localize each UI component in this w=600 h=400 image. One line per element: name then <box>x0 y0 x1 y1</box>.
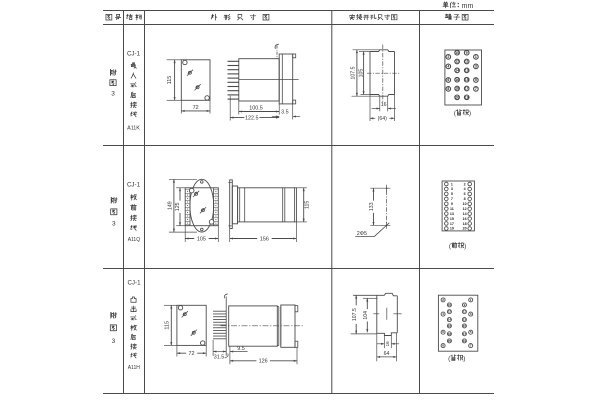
svg-text:18: 18 <box>448 332 452 336</box>
svg-text:100.5: 100.5 <box>249 106 263 112</box>
svg-text:20: 20 <box>455 96 459 100</box>
svg-text:15: 15 <box>463 324 467 328</box>
svg-text:5: 5 <box>451 192 453 196</box>
svg-text:107.5: 107.5 <box>350 66 356 79</box>
svg-text:10: 10 <box>448 303 452 307</box>
svg-text:16: 16 <box>463 217 467 221</box>
svg-text:CJ-1: CJ-1 <box>127 51 141 58</box>
svg-text:9.5: 9.5 <box>237 346 245 352</box>
svg-text:13: 13 <box>450 212 454 216</box>
svg-text:17: 17 <box>465 87 469 91</box>
svg-text:13: 13 <box>465 69 469 73</box>
svg-text:): ) <box>469 110 471 117</box>
svg-text:14: 14 <box>463 212 467 216</box>
svg-text:3.5: 3.5 <box>281 110 289 116</box>
svg-text:8: 8 <box>464 197 466 201</box>
svg-text:18: 18 <box>455 87 459 91</box>
svg-text:17: 17 <box>450 222 454 226</box>
svg-text:2: 2 <box>464 182 466 186</box>
svg-text:16: 16 <box>455 78 459 82</box>
svg-text:2: 2 <box>447 55 449 59</box>
svg-text:15: 15 <box>465 78 469 82</box>
svg-text:CJ-1: CJ-1 <box>127 280 141 287</box>
svg-text:2Φ5: 2Φ5 <box>357 231 367 237</box>
svg-text:8: 8 <box>447 87 449 91</box>
svg-text:16: 16 <box>448 324 452 328</box>
svg-text:64: 64 <box>384 351 390 357</box>
svg-text:72: 72 <box>189 351 195 357</box>
svg-text:11: 11 <box>465 60 469 64</box>
svg-text:3: 3 <box>112 338 116 345</box>
svg-text:16: 16 <box>381 102 387 108</box>
svg-text:105: 105 <box>197 236 206 242</box>
svg-text:13: 13 <box>463 318 467 322</box>
svg-text:14: 14 <box>455 69 459 73</box>
svg-text:125: 125 <box>175 202 181 211</box>
svg-text:11: 11 <box>463 310 466 314</box>
svg-text:12: 12 <box>455 60 459 64</box>
svg-text:7: 7 <box>475 87 477 91</box>
svg-text:6: 6 <box>447 78 449 82</box>
svg-text:3: 3 <box>451 187 453 191</box>
svg-text:31.5: 31.5 <box>214 354 225 360</box>
svg-text:10: 10 <box>455 51 459 55</box>
svg-text:A11K: A11K <box>127 126 140 132</box>
svg-text:122.5: 122.5 <box>245 116 259 122</box>
svg-text:9: 9 <box>451 202 453 206</box>
svg-text:1: 1 <box>475 55 477 59</box>
svg-text:1: 1 <box>451 182 453 186</box>
svg-text:156: 156 <box>260 236 269 242</box>
svg-text:9: 9 <box>466 51 468 55</box>
svg-text:3: 3 <box>111 91 115 98</box>
svg-text:A11H: A11H <box>128 365 141 371</box>
svg-text:20: 20 <box>463 227 467 231</box>
svg-text:12: 12 <box>463 207 467 211</box>
svg-text:19: 19 <box>463 339 467 343</box>
svg-text:16: 16 <box>385 341 390 347</box>
svg-text:(64): (64) <box>378 116 387 122</box>
svg-text:105: 105 <box>358 69 364 78</box>
svg-text:115: 115 <box>167 76 173 85</box>
svg-text:14: 14 <box>448 318 452 322</box>
svg-text:3: 3 <box>475 65 477 69</box>
svg-text:104: 104 <box>363 311 369 320</box>
svg-text:3: 3 <box>112 221 116 228</box>
svg-text:5: 5 <box>475 78 477 82</box>
svg-text:mm: mm <box>462 3 474 10</box>
svg-text:15: 15 <box>450 217 454 221</box>
svg-text:): ) <box>463 355 465 362</box>
svg-text:133: 133 <box>369 202 375 211</box>
svg-text:18: 18 <box>463 222 467 226</box>
svg-text:19: 19 <box>450 227 454 231</box>
svg-text:CJ-1: CJ-1 <box>127 182 141 189</box>
svg-text:107.5: 107.5 <box>352 308 358 321</box>
svg-text:72: 72 <box>193 105 199 111</box>
svg-text:115: 115 <box>304 201 310 209</box>
svg-text:4: 4 <box>447 65 449 69</box>
svg-text:7: 7 <box>451 197 453 201</box>
svg-text:A11Q: A11Q <box>128 237 141 243</box>
svg-text:11: 11 <box>450 207 454 211</box>
svg-text:): ) <box>464 243 466 250</box>
svg-text:126: 126 <box>259 359 268 365</box>
svg-text:4: 4 <box>464 187 466 191</box>
svg-text:20: 20 <box>448 339 452 343</box>
svg-text:17: 17 <box>463 332 467 336</box>
svg-text:149: 149 <box>168 201 174 210</box>
svg-text:10: 10 <box>463 202 467 206</box>
svg-text:19: 19 <box>465 96 469 100</box>
svg-text:6: 6 <box>464 192 466 196</box>
svg-text:12: 12 <box>448 310 452 314</box>
svg-text:115: 115 <box>164 321 170 330</box>
